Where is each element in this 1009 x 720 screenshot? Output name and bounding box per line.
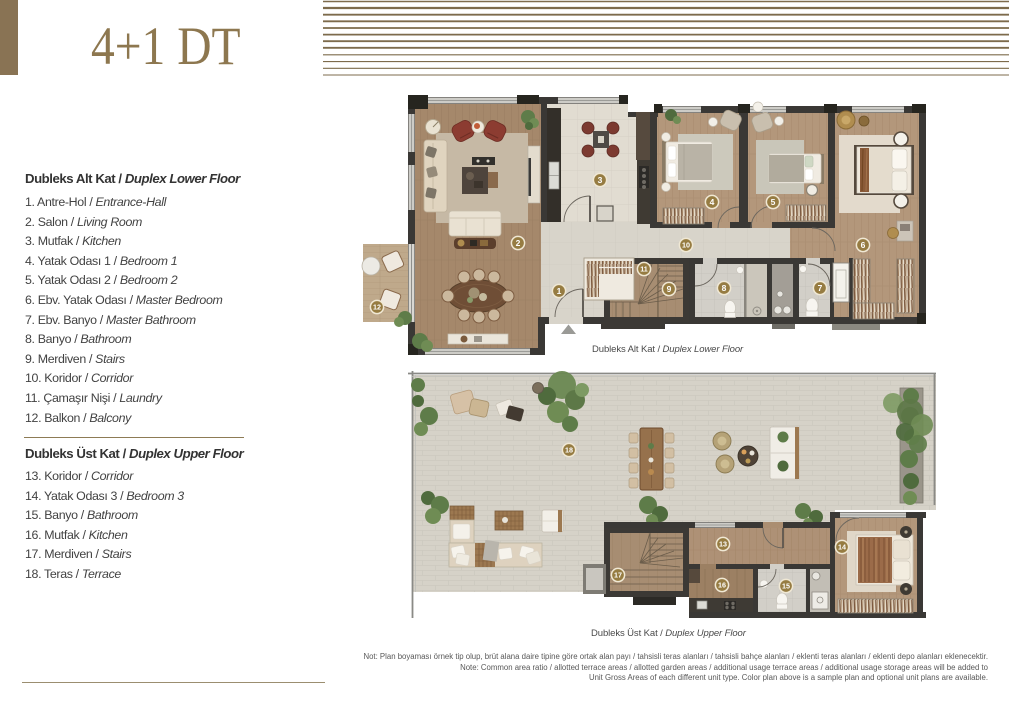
svg-text:7: 7 <box>818 283 823 293</box>
svg-text:18: 18 <box>565 446 573 455</box>
svg-text:1: 1 <box>557 286 562 296</box>
svg-text:8: 8 <box>722 283 727 293</box>
svg-text:3: 3 <box>598 175 603 185</box>
svg-text:5: 5 <box>771 197 776 207</box>
svg-text:13: 13 <box>719 540 727 549</box>
svg-text:6: 6 <box>861 240 866 250</box>
svg-text:12: 12 <box>373 303 381 312</box>
svg-text:16: 16 <box>718 581 726 590</box>
svg-text:15: 15 <box>782 582 790 591</box>
svg-text:10: 10 <box>682 241 690 250</box>
svg-text:9: 9 <box>667 284 672 294</box>
svg-text:11: 11 <box>640 265 648 274</box>
svg-text:4: 4 <box>710 197 715 207</box>
svg-text:2: 2 <box>516 238 521 248</box>
svg-text:14: 14 <box>838 543 846 552</box>
svg-text:17: 17 <box>614 571 622 580</box>
